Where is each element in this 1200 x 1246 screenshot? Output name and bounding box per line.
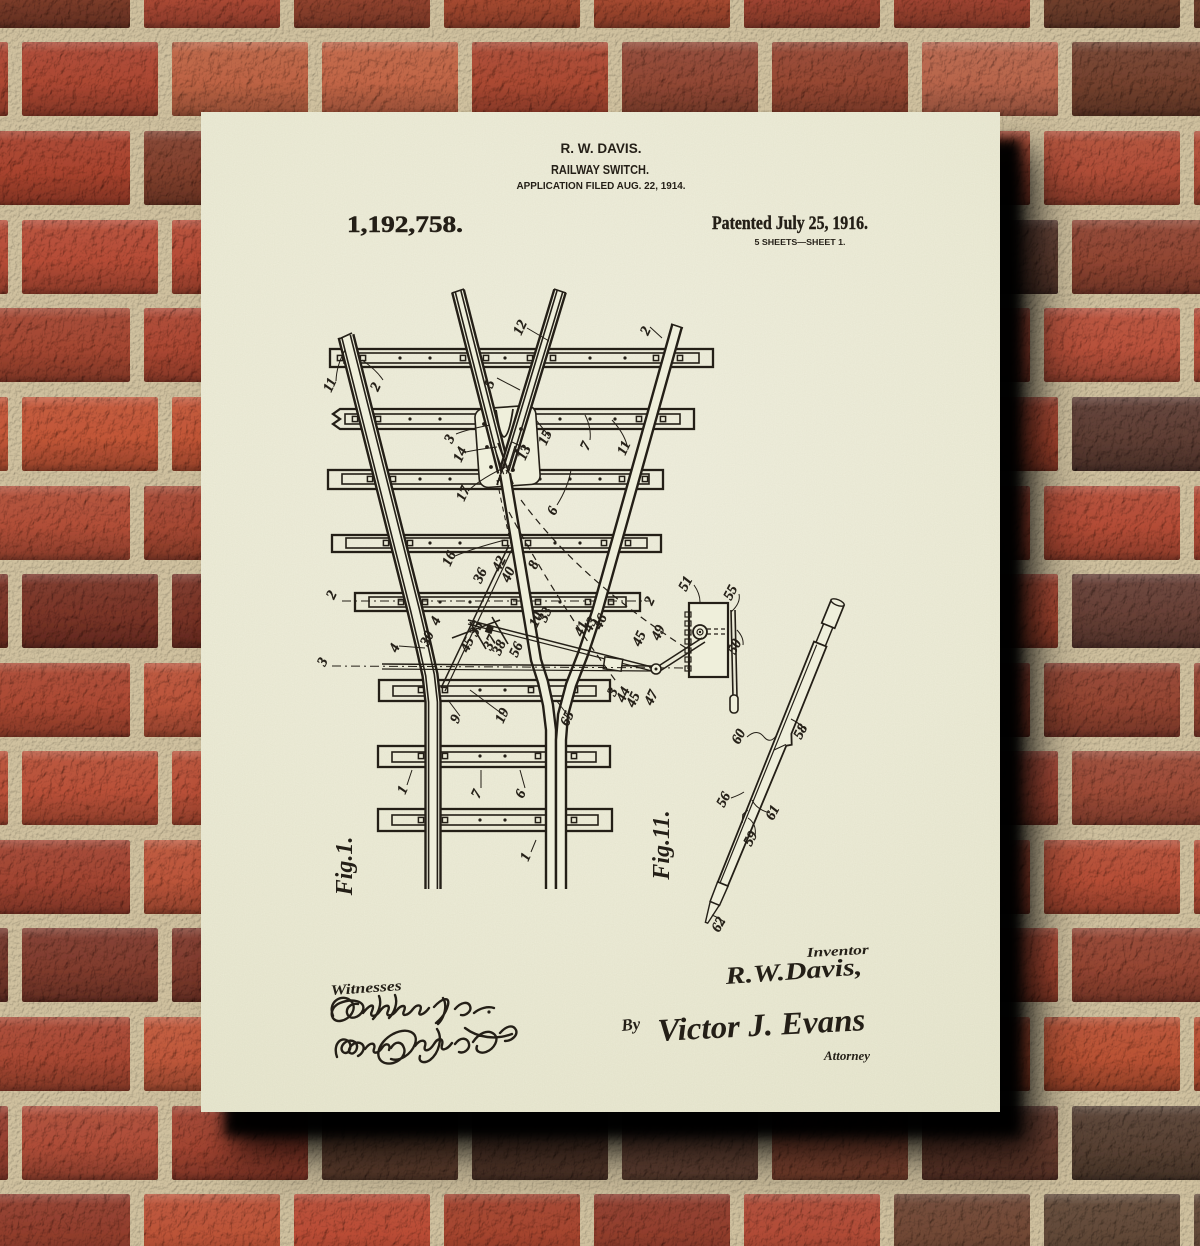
svg-text:1,192,758.: 1,192,758.: [347, 212, 463, 237]
svg-text:APPLICATION FILED AUG. 22, 191: APPLICATION FILED AUG. 22, 1914.: [517, 181, 686, 192]
svg-text:RAILWAY SWITCH.: RAILWAY SWITCH.: [551, 162, 649, 177]
svg-text:5 SHEETS—SHEET 1.: 5 SHEETS—SHEET 1.: [755, 237, 846, 247]
svg-text:By: By: [619, 1014, 641, 1035]
svg-text:Fig.1.: Fig.1.: [332, 837, 358, 897]
svg-text:Patented July 25, 1916.: Patented July 25, 1916.: [712, 214, 868, 234]
svg-text:R. W. DAVIS.: R. W. DAVIS.: [561, 141, 642, 156]
svg-text:Attorney: Attorney: [823, 1049, 870, 1063]
svg-text:Fig.11.: Fig.11.: [649, 810, 675, 880]
